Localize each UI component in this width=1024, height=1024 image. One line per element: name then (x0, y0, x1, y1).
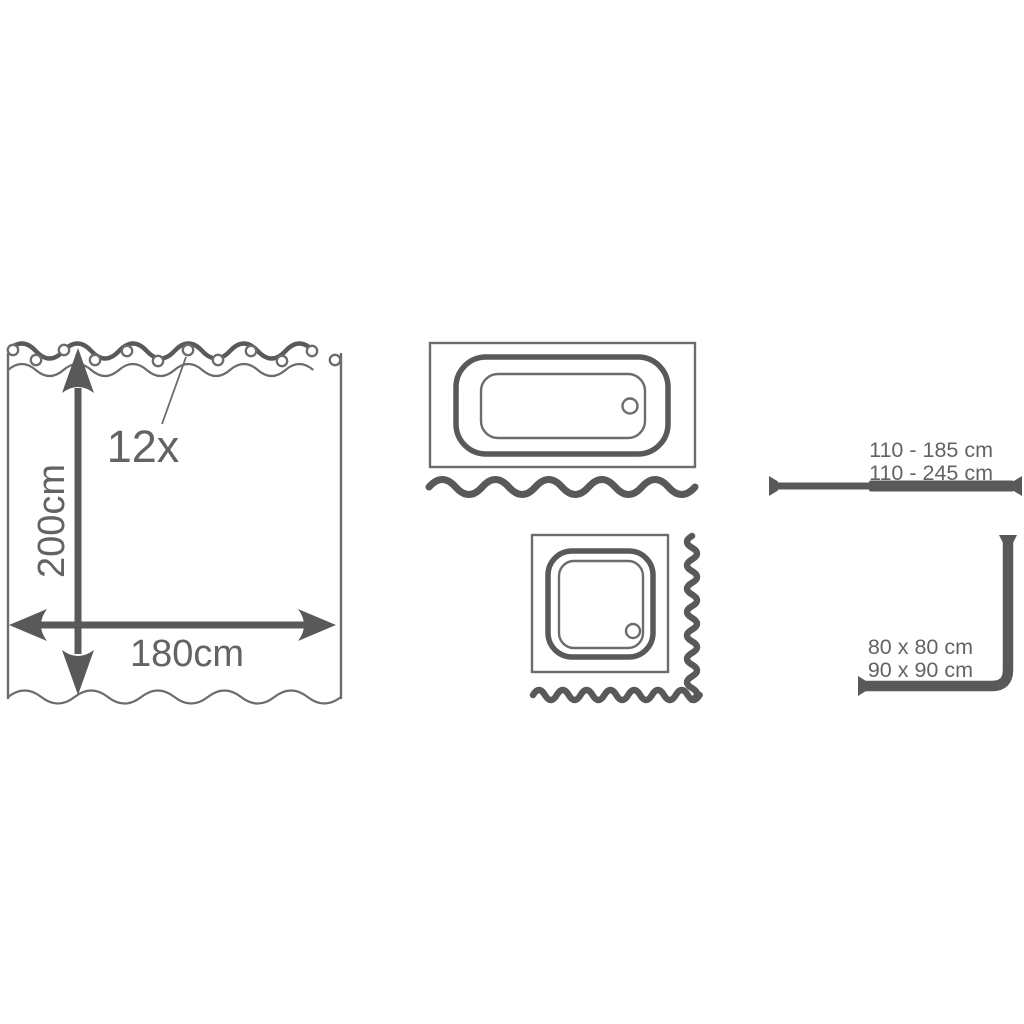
product-diagram: 12x 200cm 180cm (0, 0, 1024, 1024)
curtain-bottom-wave (8, 691, 341, 704)
curtain-eyelet (59, 345, 69, 355)
straight-rod-thin-tube (777, 483, 871, 490)
corner-rod-top-cap (999, 535, 1017, 543)
straight-rod-range-1: 110 - 185 cm (869, 438, 993, 462)
curtain-eyelet (277, 356, 287, 366)
corner-rod-size-1: 80 x 80 cm (868, 635, 973, 659)
eyelet-count-label: 12x (107, 421, 180, 472)
corner-rod-size-2: 90 x 90 cm (868, 658, 973, 682)
curtain-eyelet (31, 355, 41, 365)
straight-rod-thick-tube (869, 481, 1014, 492)
curtain-eyelet (330, 355, 340, 365)
corner-rod-diagram: 80 x 80 cm 90 x 90 cm (858, 535, 1017, 696)
curtain-eyelet (153, 356, 163, 366)
curtain-diagram: 12x 200cm 180cm (8, 344, 341, 704)
curtain-eyelet (122, 346, 132, 356)
tray-rim (548, 551, 653, 657)
diagram-canvas: 12x 200cm 180cm (0, 0, 1024, 1024)
bathtub-basin (481, 374, 645, 438)
bathtub-drain-icon (623, 399, 638, 414)
straight-rod-diagram: 110 - 185 cm 110 - 245 cm (769, 438, 1022, 496)
height-arrow-down-icon (62, 650, 94, 695)
tray-curtain-wave-bottom-icon (533, 690, 700, 700)
curtain-eyelet (307, 346, 317, 356)
curtain-eyelet (8, 345, 18, 355)
curtain-width-label: 180cm (130, 633, 244, 675)
corner-rod-left-cap (858, 676, 866, 696)
straight-rod-left-cap (769, 476, 778, 496)
bathtub-top-view (429, 343, 695, 495)
curtain-eyelet (183, 345, 193, 355)
curtain-eyelet (90, 355, 100, 365)
straight-rod-right-cap (1013, 476, 1022, 496)
tray-drain-icon (626, 624, 640, 638)
tray-curtain-wave-right-icon (687, 536, 697, 700)
curtain-eyelet (213, 355, 223, 365)
eyelet-leader-line (162, 357, 186, 424)
bathtub-curtain-wave-icon (429, 480, 695, 495)
curtain-eyelet (246, 346, 256, 356)
curtain-height-label: 200cm (31, 464, 73, 578)
shower-tray-top-view (532, 535, 700, 700)
